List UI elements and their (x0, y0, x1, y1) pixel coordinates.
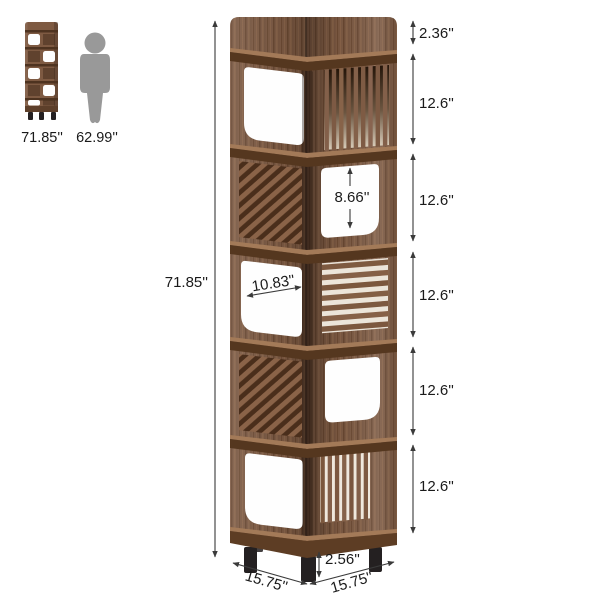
section-height-label: 12.6'' (419, 287, 454, 304)
top-rim-dimension-label: 2.36'' (419, 25, 454, 42)
section-height-label: 12.6'' (419, 95, 454, 112)
vertical-slats (320, 451, 370, 523)
shelf-cutout (325, 357, 380, 423)
thumbnail-leg (28, 112, 33, 120)
shelf-cutout (245, 453, 303, 530)
thumbnail-leg (51, 112, 56, 120)
base-side-left-label: 15.75'' (243, 568, 289, 596)
scale-reference: 71.85'' 62.99'' (21, 22, 118, 146)
thumbnail-leg (39, 112, 44, 120)
product-dimension-image: 71.85'' 62.99'' (0, 0, 600, 600)
diagonal-slats (239, 161, 302, 245)
person-height-label: 62.99'' (76, 130, 118, 146)
section-height-dimensions: 2.36'' 12.6'' 12.6'' 12.6'' 12.6'' 12.6'… (413, 21, 454, 533)
diagonal-slats (239, 354, 302, 438)
horizontal-slats (322, 258, 388, 333)
dimension-diagram: 71.85'' 62.99'' (0, 0, 600, 600)
shelf-leg (301, 556, 316, 582)
leg-height-label: 2.56'' (325, 551, 360, 568)
section-height-label: 12.6'' (419, 192, 454, 209)
vertical-slats (324, 64, 389, 151)
section-height-label: 12.6'' (419, 382, 454, 399)
shelf-cutout (244, 67, 304, 146)
overall-height-label: 71.85'' (165, 274, 208, 291)
opening-height-label: 8.66'' (335, 189, 370, 206)
section-height-label: 12.6'' (419, 478, 454, 495)
thumbnail-bookshelf (25, 22, 58, 120)
person-silhouette (80, 33, 110, 124)
corner-bookshelf (230, 17, 397, 582)
overall-height-dimension: 71.85'' (165, 21, 215, 557)
thumbnail-shelf-height-label: 71.85'' (21, 130, 63, 146)
corner-edge (302, 58, 313, 548)
